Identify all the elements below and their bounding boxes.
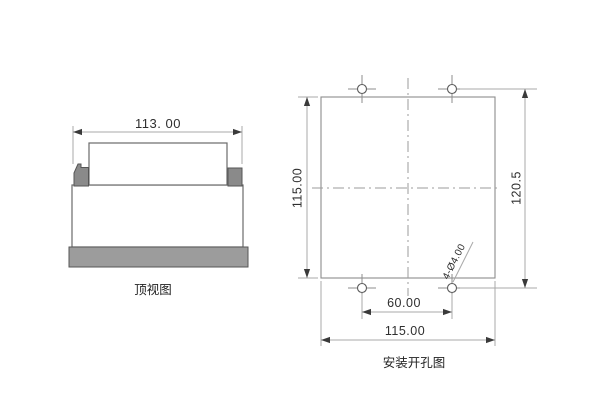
dim-text-115-vertical: 115.00	[290, 168, 304, 208]
technical-drawing: 113. 00 顶视图	[0, 0, 600, 400]
hole-circle	[448, 284, 457, 293]
dim-text-115-horizontal: 115.00	[385, 324, 425, 338]
meter-display-housing	[89, 143, 227, 185]
dim-text-113: 113. 00	[135, 116, 181, 131]
dim-text-120-5: 120.5	[509, 171, 523, 205]
hole-vertical-span-dimension: 120.5	[460, 89, 537, 288]
hole-circle	[358, 284, 367, 293]
mounting-clip-left	[74, 164, 89, 186]
top-view-label: 顶视图	[134, 282, 172, 297]
hole-circle	[448, 85, 457, 94]
drawing-canvas: 113. 00 顶视图	[0, 0, 600, 400]
hole-size-callout: 4-Ø4.00	[441, 242, 473, 282]
mounting-clip-right	[228, 168, 242, 186]
hole-horizontal-span-dimension: 60.00	[362, 294, 452, 319]
hole-callout-text: 4-Ø4.00	[441, 242, 468, 281]
mounting-hole-top-left	[348, 75, 376, 103]
front-bezel-panel	[69, 247, 248, 267]
meter-body	[72, 185, 243, 247]
top-view: 113. 00 顶视图	[69, 116, 248, 297]
dim-text-60: 60.00	[387, 296, 421, 310]
hole-circle	[358, 85, 367, 94]
mounting-view-label: 安装开孔图	[383, 355, 446, 370]
mounting-hole-view: 115.00 120.5 60.00 115.00	[290, 75, 537, 370]
